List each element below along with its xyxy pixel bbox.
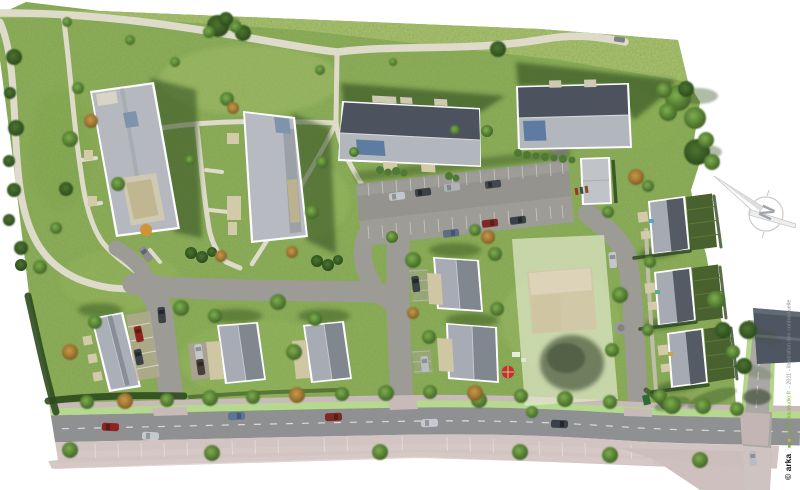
svg-text:www.arka-studio.fr: www.arka-studio.fr (787, 391, 793, 437)
svg-text:© arka: © arka (783, 454, 793, 480)
svg-text:■: ■ (787, 439, 793, 442)
svg-text:■: ■ (787, 445, 793, 448)
svg-text:- 2011 - illustration non cont: - 2011 - illustration non contractuelle (787, 300, 793, 388)
